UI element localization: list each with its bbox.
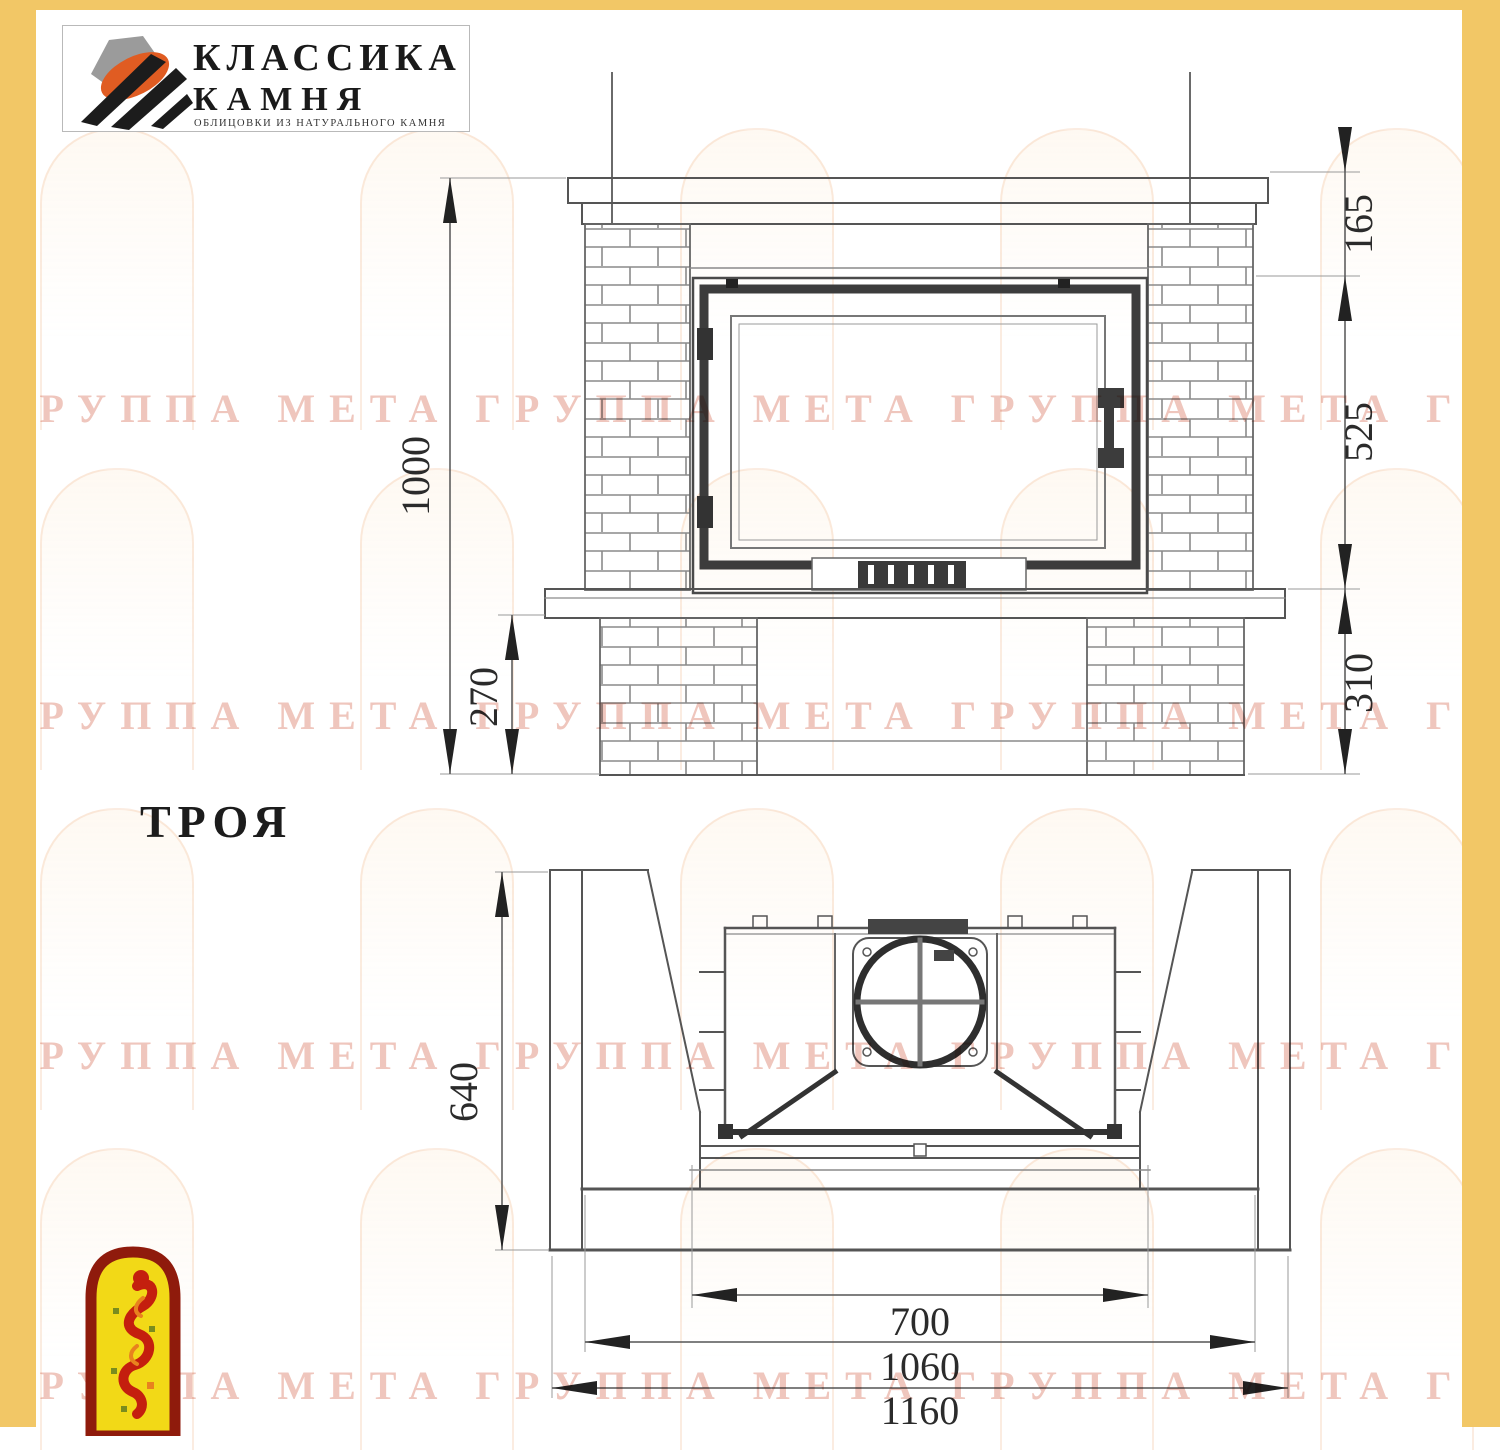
brand-name-line1: КЛАССИКА xyxy=(193,37,462,79)
dim-640: 640 xyxy=(441,872,548,1250)
plan-wall-right xyxy=(1140,870,1290,1250)
flue-collar xyxy=(868,919,968,934)
firebox-door-frame xyxy=(704,289,1136,565)
stone-logo-icon xyxy=(81,36,193,130)
company-logo: КЛАССИКА КАМНЯ ОБЛИЦОВКИ ИЗ НАТУРАЛЬНОГО… xyxy=(63,26,469,131)
company-logo-box: КЛАССИКА КАМНЯ ОБЛИЦОВКИ ИЗ НАТУРАЛЬНОГО… xyxy=(62,25,470,132)
dim-label-700: 700 xyxy=(890,1299,950,1344)
brand-name-line2: КАМНЯ xyxy=(193,81,370,118)
dim-label-525: 525 xyxy=(1336,402,1381,462)
front-view xyxy=(545,73,1285,775)
mantel-shelf xyxy=(568,178,1268,224)
plan-wall-left xyxy=(550,870,700,1250)
model-title: ТРОЯ xyxy=(140,795,293,848)
spec-sheet-page: { "brand": { "name_line1": "КЛАССИКА", "… xyxy=(0,0,1500,1427)
firebox-insert xyxy=(693,278,1147,593)
dim-270: 270 xyxy=(461,615,545,774)
dim-label-310: 310 xyxy=(1336,653,1381,713)
flue-opening xyxy=(853,938,987,1066)
frame-border-right xyxy=(1462,0,1500,1427)
brand-tagline: ОБЛИЦОВКИ ИЗ НАТУРАЛЬНОГО КАМНЯ xyxy=(194,118,446,129)
brick-column-right xyxy=(1148,224,1253,590)
dim-1060: 1060 xyxy=(585,1195,1255,1389)
plan-front-frame xyxy=(550,1124,1290,1250)
door-glass xyxy=(731,316,1105,548)
dim-label-1000: 1000 xyxy=(393,436,438,516)
door-hinge-top xyxy=(697,328,713,360)
plan-firebox xyxy=(700,916,1140,1136)
dim-label-165: 165 xyxy=(1336,194,1381,254)
dim-label-640: 640 xyxy=(441,1062,486,1122)
technical-drawing: 1000 270 165 525 310 xyxy=(0,0,1500,1427)
chimney-lines xyxy=(612,73,1190,224)
frame-border-left xyxy=(0,0,36,1427)
meta-arch-logo-icon xyxy=(85,1246,181,1441)
plan-view xyxy=(550,870,1290,1250)
dim-label-270: 270 xyxy=(461,667,506,727)
pedestal-left xyxy=(600,618,757,775)
door-handle xyxy=(1098,388,1124,468)
pedestal-right xyxy=(1087,618,1244,775)
dim-right-chain: 165 525 310 xyxy=(1248,127,1381,774)
dim-label-1160: 1160 xyxy=(881,1388,960,1427)
vent-grille xyxy=(812,558,1026,590)
door-hinge-bottom xyxy=(697,496,713,528)
frame-border-top xyxy=(0,0,1500,10)
dim-700: 700 xyxy=(692,1165,1148,1344)
brick-column-left xyxy=(585,224,690,590)
dim-label-1060: 1060 xyxy=(880,1344,960,1389)
